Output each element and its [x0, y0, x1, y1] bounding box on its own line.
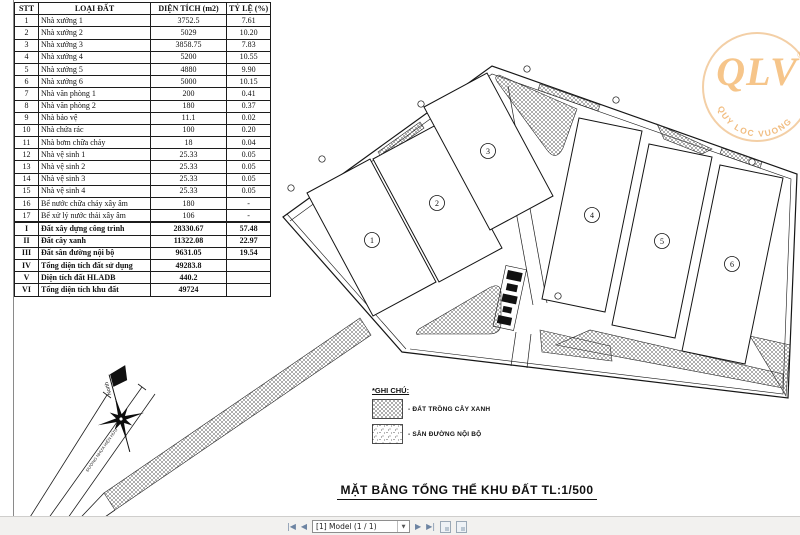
- building-2-number: 2: [435, 199, 439, 208]
- page-layout-icon-2[interactable]: [456, 521, 467, 533]
- road-speckle-swatch: [372, 424, 403, 444]
- page-layout-icon[interactable]: [440, 521, 451, 533]
- cad-viewer-window: { "table": { "headers": ["STT", "LOẠI ĐẤ…: [0, 0, 800, 535]
- legend-item-road: - SÂN ĐƯỜNG NỘI BỘ: [372, 424, 490, 444]
- plan-title: MẶT BẰNG TỔNG THỂ KHU ĐẤT TL:1/500: [322, 481, 612, 500]
- svg-text:QUY LOC VUONG: QUY LOC VUONG: [716, 104, 794, 138]
- sheet-selector-dropdown[interactable]: [1] Model (1 / 1) ▼: [312, 520, 410, 533]
- legend-item-green: - ĐẤT TRỒNG CÂY XANH: [372, 399, 490, 419]
- sheet-selector-value: [1] Model (1 / 1): [313, 521, 397, 532]
- building-4-number: 4: [590, 211, 594, 220]
- road-name-label: ĐƯỜNG NHỰA HIỆN HỮU: [85, 427, 119, 472]
- legend-label-green: - ĐẤT TRỒNG CÂY XANH: [408, 406, 490, 413]
- sheet-navigation-toolbar: |◀ ◀ [1] Model (1 / 1) ▼ ▶ ▶|: [0, 516, 800, 535]
- qlv-watermark-logo: QLV ® QUY LOC VUONG: [702, 32, 800, 142]
- watermark-arc: QUY LOC VUONG: [704, 34, 800, 144]
- building-5-number: 5: [660, 237, 664, 246]
- site-plan-drawing: 1 2 3 4 5 6 ĐƯỜNG NHỰA HIỆN HỮU: [0, 0, 800, 535]
- first-sheet-button[interactable]: |◀: [287, 521, 296, 533]
- building-6-number: 6: [730, 260, 734, 269]
- chevron-down-icon[interactable]: ▼: [397, 521, 409, 532]
- previous-sheet-button[interactable]: ◀: [301, 521, 307, 533]
- next-sheet-button[interactable]: ▶: [415, 521, 421, 533]
- green-hatch-swatch: [372, 399, 403, 419]
- legend-heading: *GHI CHÚ:: [372, 386, 490, 395]
- building-1-number: 1: [370, 236, 374, 245]
- building-3-number: 3: [486, 147, 490, 156]
- access-roads: [20, 384, 155, 535]
- last-sheet-button[interactable]: ▶|: [426, 521, 435, 533]
- watermark-arc-text: QUY LOC VUONG: [716, 104, 794, 138]
- plan-legend: *GHI CHÚ: - ĐẤT TRỒNG CÂY XANH - SÂN ĐƯỜ…: [372, 386, 490, 449]
- legend-label-road: - SÂN ĐƯỜNG NỘI BỘ: [408, 431, 481, 438]
